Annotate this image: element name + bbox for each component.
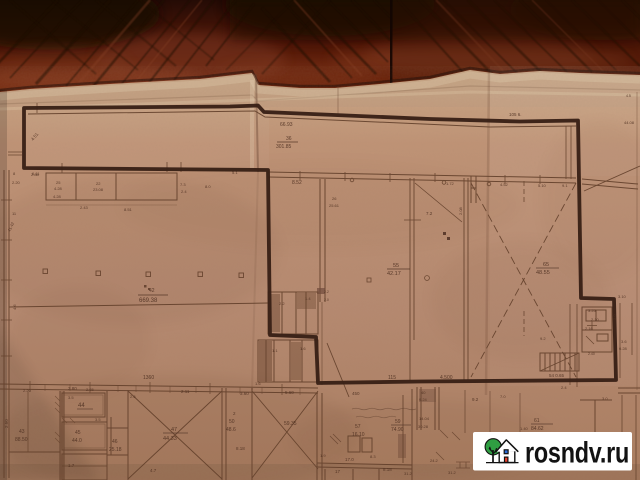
- svg-text:55: 55: [393, 263, 399, 269]
- svg-text:4.28: 4.28: [54, 186, 63, 191]
- svg-text:59.35: 59.35: [284, 421, 297, 427]
- svg-text:4.5: 4.5: [626, 94, 631, 98]
- svg-text:48.6: 48.6: [226, 427, 236, 433]
- svg-text:5.60: 5.60: [285, 390, 294, 395]
- svg-text:450: 450: [352, 391, 360, 396]
- svg-text:17.0: 17.0: [345, 457, 354, 462]
- svg-text:3.6: 3.6: [621, 339, 627, 344]
- svg-text:3.0: 3.0: [602, 396, 608, 401]
- svg-text:7.2: 7.2: [426, 211, 433, 216]
- svg-text:1.4: 1.4: [305, 296, 311, 301]
- svg-text:2.0: 2.0: [324, 298, 329, 302]
- svg-text:30.28: 30.28: [418, 424, 429, 429]
- svg-text:31.2: 31.2: [448, 470, 457, 475]
- svg-text:6.11: 6.11: [32, 171, 40, 176]
- svg-text:43: 43: [19, 429, 25, 435]
- svg-text:7.0: 7.0: [500, 394, 506, 399]
- svg-text:1.6: 1.6: [300, 346, 306, 351]
- svg-text:59: 59: [395, 419, 401, 425]
- svg-text:1.72: 1.72: [446, 181, 455, 186]
- svg-text:50: 50: [229, 419, 235, 425]
- svg-text:2.2: 2.2: [279, 301, 285, 306]
- svg-text:rosndv.ru: rosndv.ru: [525, 436, 629, 469]
- svg-text:66.93: 66.93: [280, 122, 293, 128]
- svg-text:8.51: 8.51: [124, 207, 133, 212]
- svg-text:44: 44: [78, 403, 85, 409]
- svg-text:25.18: 25.18: [109, 447, 122, 453]
- svg-text:3.80: 3.80: [68, 386, 77, 391]
- svg-text:40: 40: [421, 390, 426, 395]
- svg-text:44.0: 44.0: [72, 438, 82, 444]
- svg-text:44.33: 44.33: [163, 436, 177, 442]
- svg-text:9.2: 9.2: [540, 336, 546, 341]
- svg-text:8.0: 8.0: [205, 184, 211, 189]
- svg-text:4.28: 4.28: [53, 194, 62, 199]
- svg-text:47: 47: [171, 427, 177, 433]
- svg-text:105 6.: 105 6.: [509, 112, 522, 117]
- svg-text:2.50: 2.50: [4, 419, 9, 428]
- svg-text:2.43: 2.43: [80, 205, 89, 210]
- svg-text:23.08: 23.08: [93, 187, 104, 192]
- svg-text:2.20: 2.20: [23, 388, 32, 393]
- svg-text:2.4: 2.4: [181, 189, 187, 194]
- svg-text:4.7: 4.7: [150, 468, 157, 473]
- svg-text:25.61: 25.61: [329, 203, 340, 208]
- svg-text:8.3: 8.3: [370, 454, 376, 459]
- svg-text:48.55: 48.55: [536, 270, 550, 276]
- svg-text:25: 25: [56, 180, 61, 185]
- svg-text:3.5: 3.5: [95, 417, 101, 422]
- svg-text:9.2: 9.2: [472, 397, 479, 402]
- svg-text:8.52: 8.52: [292, 180, 302, 186]
- svg-text:3.10: 3.10: [618, 294, 627, 299]
- svg-text:2.20: 2.20: [12, 180, 21, 185]
- svg-text:22: 22: [96, 181, 101, 186]
- svg-text:2.0: 2.0: [612, 314, 617, 320]
- svg-text:4.6: 4.6: [12, 304, 17, 310]
- svg-text:46: 46: [112, 439, 118, 445]
- svg-text:1.6: 1.6: [255, 381, 261, 386]
- svg-text:2.11: 2.11: [181, 389, 190, 394]
- svg-text:36: 36: [286, 136, 292, 142]
- svg-text:2.4: 2.4: [561, 385, 567, 390]
- svg-text:2.6: 2.6: [130, 394, 136, 399]
- svg-text:57: 57: [355, 424, 361, 430]
- svg-text:7.3: 7.3: [180, 182, 186, 187]
- svg-text:1360: 1360: [143, 375, 154, 381]
- svg-text:5.10: 5.10: [538, 183, 547, 188]
- svg-text:31.2: 31.2: [404, 471, 413, 476]
- svg-text:2.16: 2.16: [585, 326, 594, 331]
- svg-text:9.24: 9.24: [419, 397, 428, 402]
- svg-text:42.17: 42.17: [387, 271, 401, 277]
- svg-text:45: 45: [75, 430, 81, 436]
- svg-text:26: 26: [332, 196, 337, 201]
- svg-text:0.28: 0.28: [619, 346, 628, 351]
- svg-text:61: 61: [534, 418, 540, 424]
- svg-text:17: 17: [335, 469, 341, 474]
- svg-text:8.18: 8.18: [236, 446, 245, 451]
- svg-text:2.08: 2.08: [458, 206, 463, 215]
- svg-text:44.08: 44.08: [624, 120, 635, 125]
- svg-text:2.10: 2.10: [591, 317, 600, 322]
- svg-text:24.2: 24.2: [430, 458, 439, 463]
- svg-text:84.62: 84.62: [531, 426, 544, 432]
- svg-text:3.25: 3.25: [588, 308, 597, 313]
- svg-text:2.40: 2.40: [588, 352, 595, 356]
- svg-text:301.85: 301.85: [276, 144, 292, 150]
- svg-text:5.1: 5.1: [232, 170, 238, 175]
- svg-text:14.04: 14.04: [419, 416, 430, 421]
- svg-text:16.10: 16.10: [352, 432, 365, 438]
- svg-text:669.38: 669.38: [139, 298, 158, 304]
- svg-text:74.90: 74.90: [391, 427, 404, 433]
- svg-text:4.52: 4.52: [500, 182, 509, 187]
- svg-text:1.9: 1.9: [320, 453, 326, 458]
- svg-text:4.500: 4.500: [440, 375, 453, 381]
- svg-text:1.7: 1.7: [68, 463, 75, 468]
- svg-text:1.1: 1.1: [272, 348, 278, 353]
- svg-text:42: 42: [149, 288, 155, 294]
- svg-text:2.65: 2.65: [86, 387, 95, 392]
- svg-text:88.50: 88.50: [15, 437, 28, 443]
- svg-text:3.60: 3.60: [240, 391, 249, 396]
- svg-text:3.5: 3.5: [68, 395, 74, 400]
- svg-text:1.40: 1.40: [520, 426, 529, 431]
- svg-text:54 0.65: 54 0.65: [549, 373, 565, 378]
- svg-text:115: 115: [388, 375, 396, 381]
- svg-text:9.1: 9.1: [562, 183, 568, 188]
- svg-text:2.2: 2.2: [324, 290, 329, 294]
- svg-text:8.18: 8.18: [383, 467, 392, 472]
- svg-text:65: 65: [543, 262, 549, 268]
